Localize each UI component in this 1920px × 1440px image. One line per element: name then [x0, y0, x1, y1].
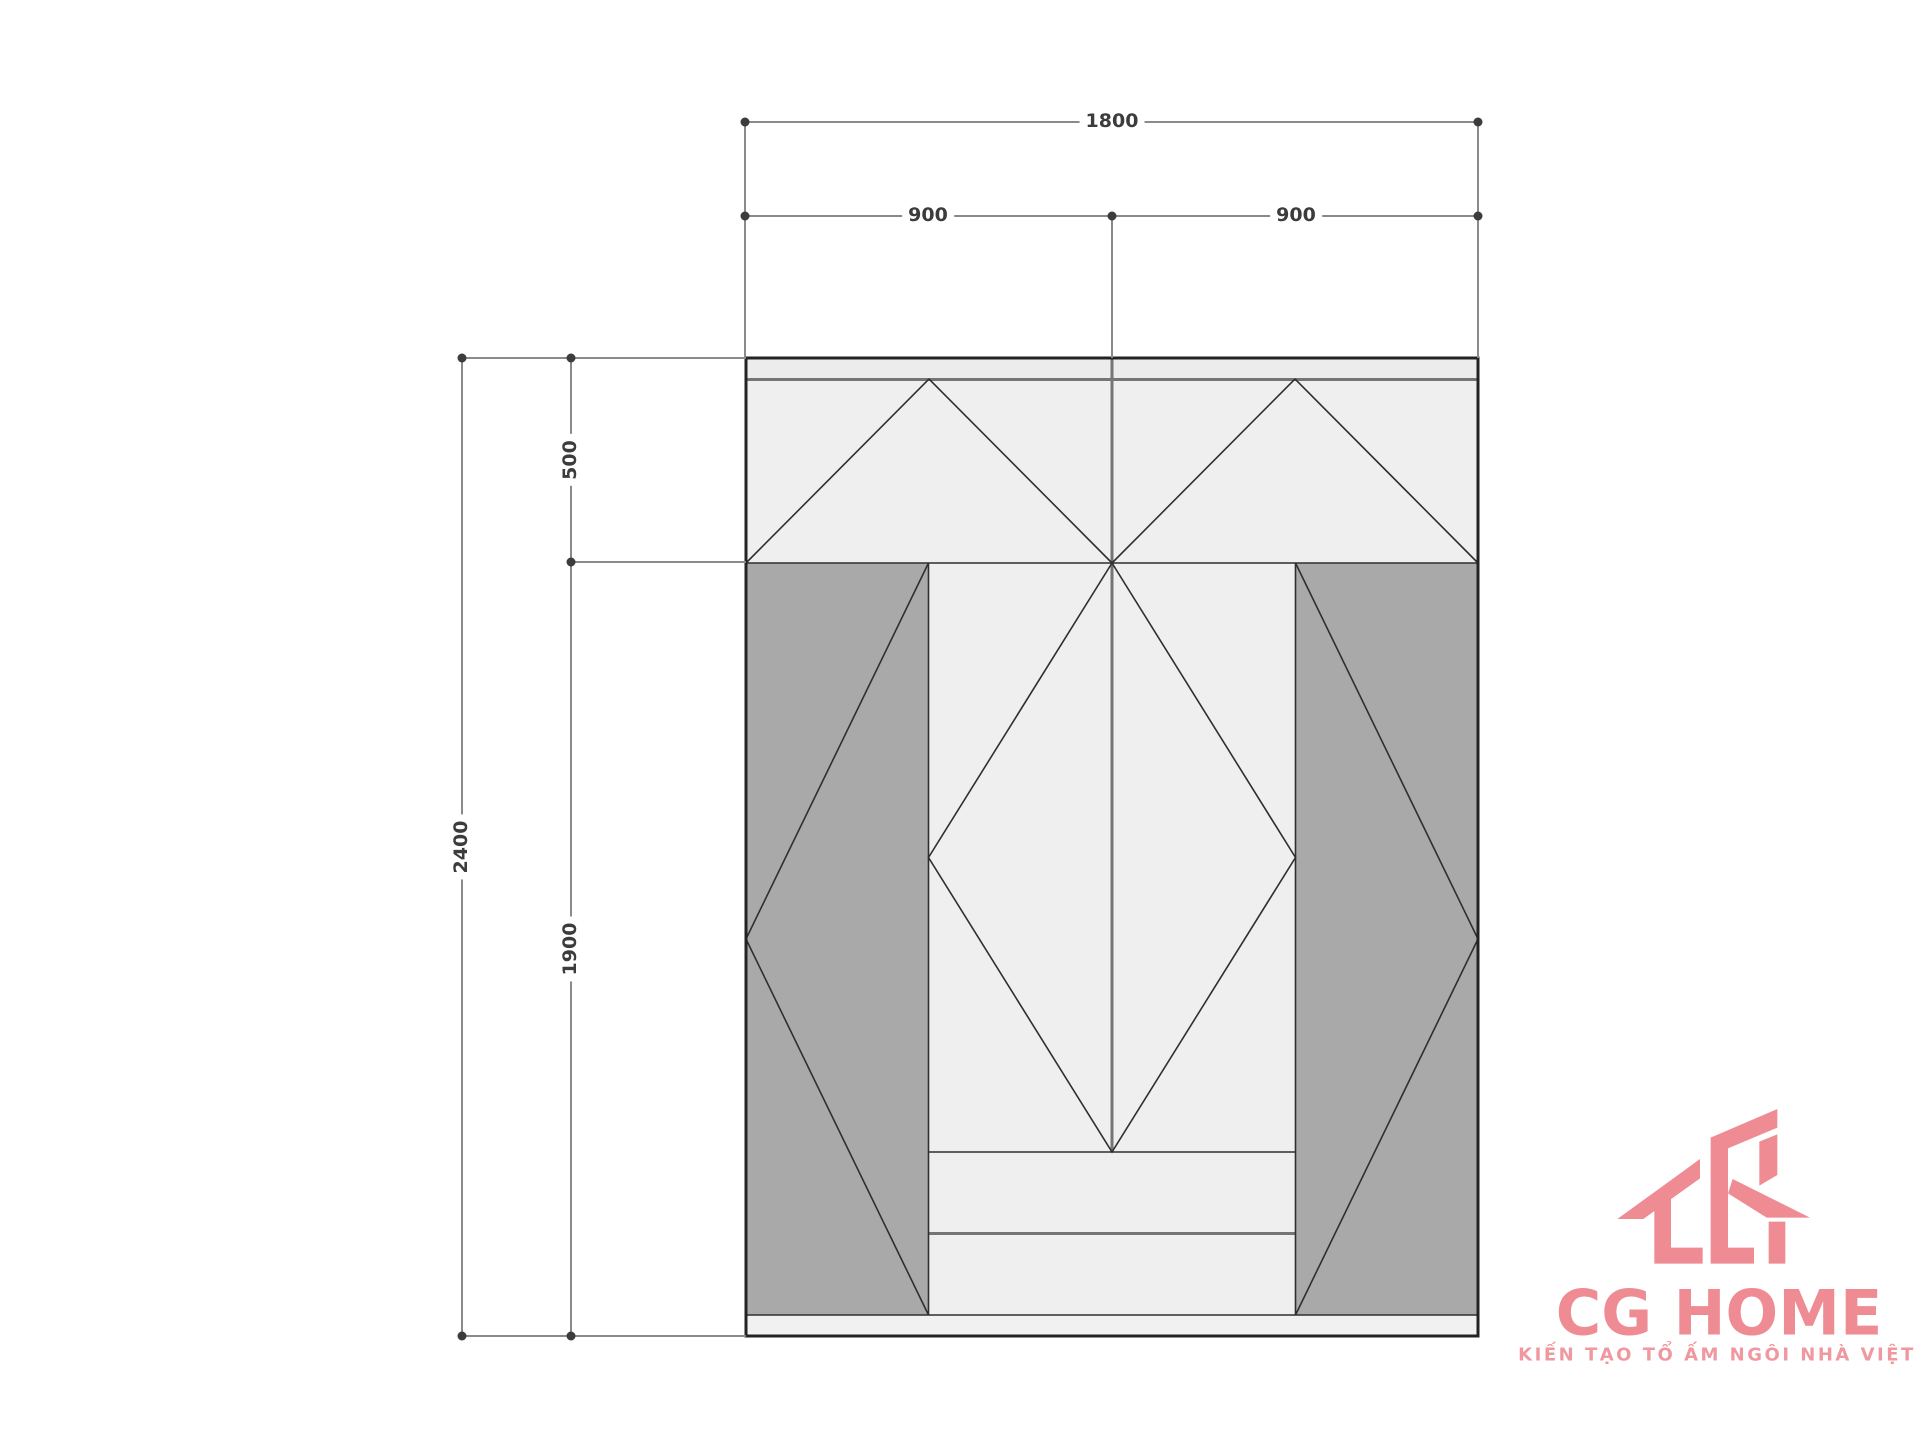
logo-letter-c-shape [1654, 1193, 1702, 1264]
logo-wordmark: CG HOME [1556, 1277, 1883, 1350]
dim-dot [458, 354, 467, 363]
dim-dot [458, 1332, 467, 1341]
logo-letter-g-base-shape [1728, 1248, 1754, 1264]
dim-dot [741, 118, 750, 127]
left-side-door-panel [746, 563, 929, 1315]
dim-label-total-width: 1800 [1080, 111, 1145, 133]
logo-right-foot-shape [1769, 1222, 1786, 1264]
dim-label-top-section-height: 500 [560, 434, 582, 486]
dim-dot [1474, 118, 1483, 127]
dim-label-left-width: 900 [902, 205, 954, 227]
logo-letter-g-column-shape [1711, 1131, 1728, 1264]
dim-dot [1474, 212, 1483, 221]
drawing-canvas: 1800 900 900 2400 500 1900 CG HOME KIẾN … [0, 0, 1920, 1440]
logo-right-roof-shape [1728, 1179, 1810, 1218]
cg-home-house-icon [1600, 1095, 1830, 1285]
dim-dot [741, 212, 750, 221]
logo-letter-g-hook-shape [1759, 1134, 1777, 1185]
dim-dot [1108, 212, 1117, 221]
dim-dot [567, 1332, 576, 1341]
cabinet-plinth-panel [746, 1315, 1478, 1336]
dim-dot [567, 558, 576, 567]
dim-label-right-width: 900 [1270, 205, 1322, 227]
dim-extension-lines-top [745, 122, 1478, 358]
dim-label-body-section-height: 1900 [560, 917, 582, 982]
dim-dot [567, 354, 576, 363]
dim-extension-lines-left [462, 358, 746, 1336]
right-side-door-panel [1296, 563, 1479, 1315]
dim-label-total-height: 2400 [451, 815, 473, 880]
logo-tagline: KIẾN TẠO TỔ ẤM NGÔI NHÀ VIỆT [1518, 1345, 1916, 1366]
